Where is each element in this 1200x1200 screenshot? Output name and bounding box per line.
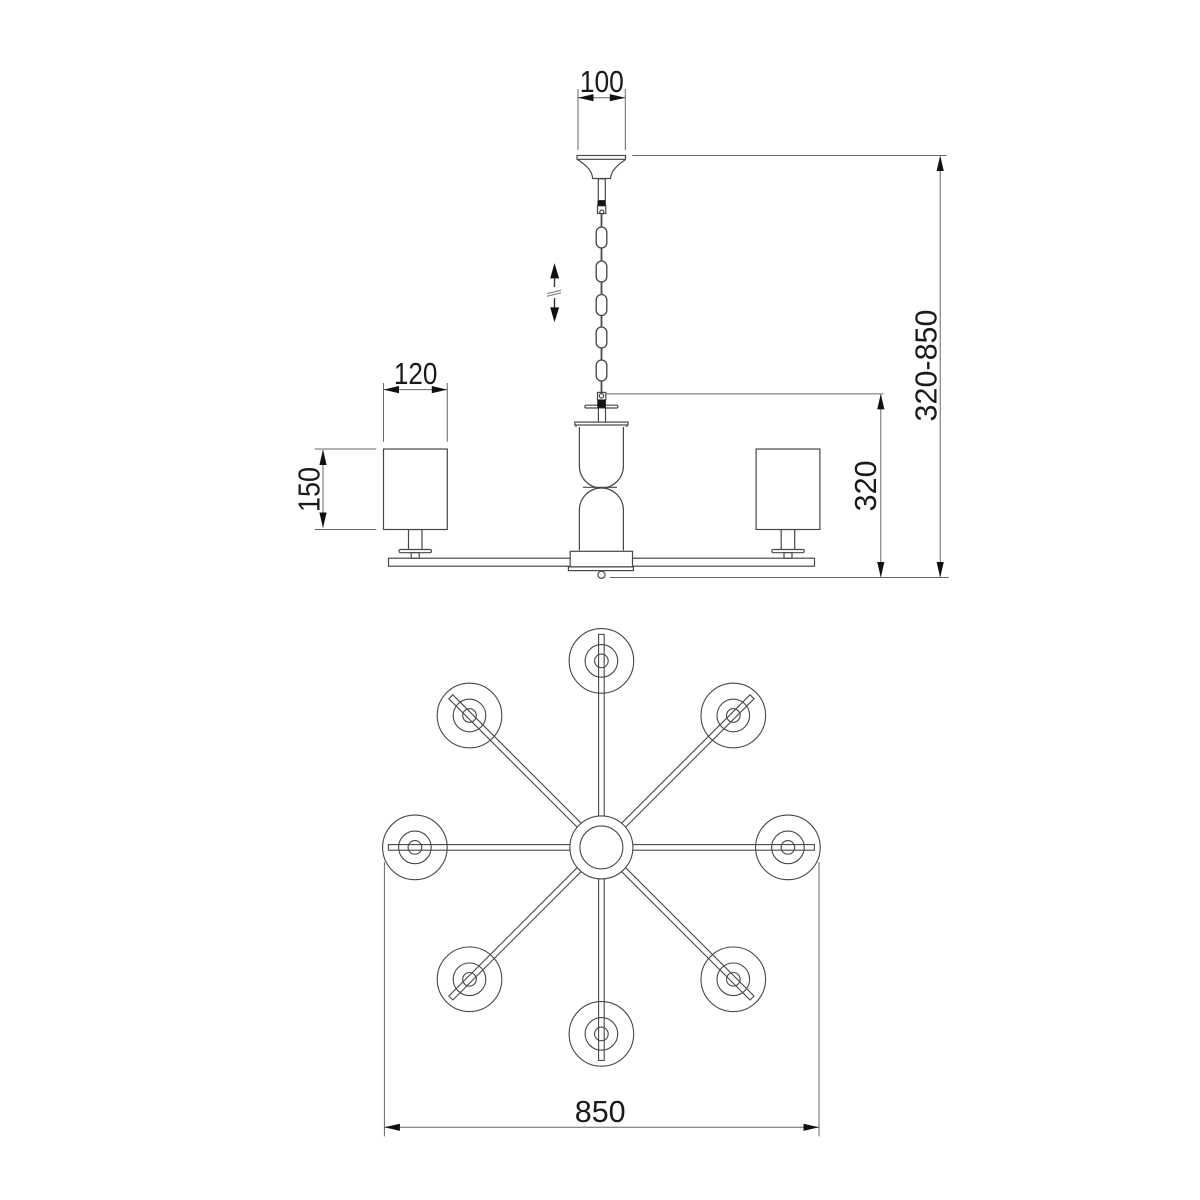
- svg-text:150: 150: [293, 467, 327, 512]
- svg-text:850: 850: [575, 1095, 626, 1129]
- svg-text:320-850: 320-850: [909, 310, 943, 422]
- svg-text:120: 120: [394, 357, 438, 391]
- svg-text:320: 320: [849, 460, 883, 511]
- svg-text:100: 100: [580, 65, 624, 99]
